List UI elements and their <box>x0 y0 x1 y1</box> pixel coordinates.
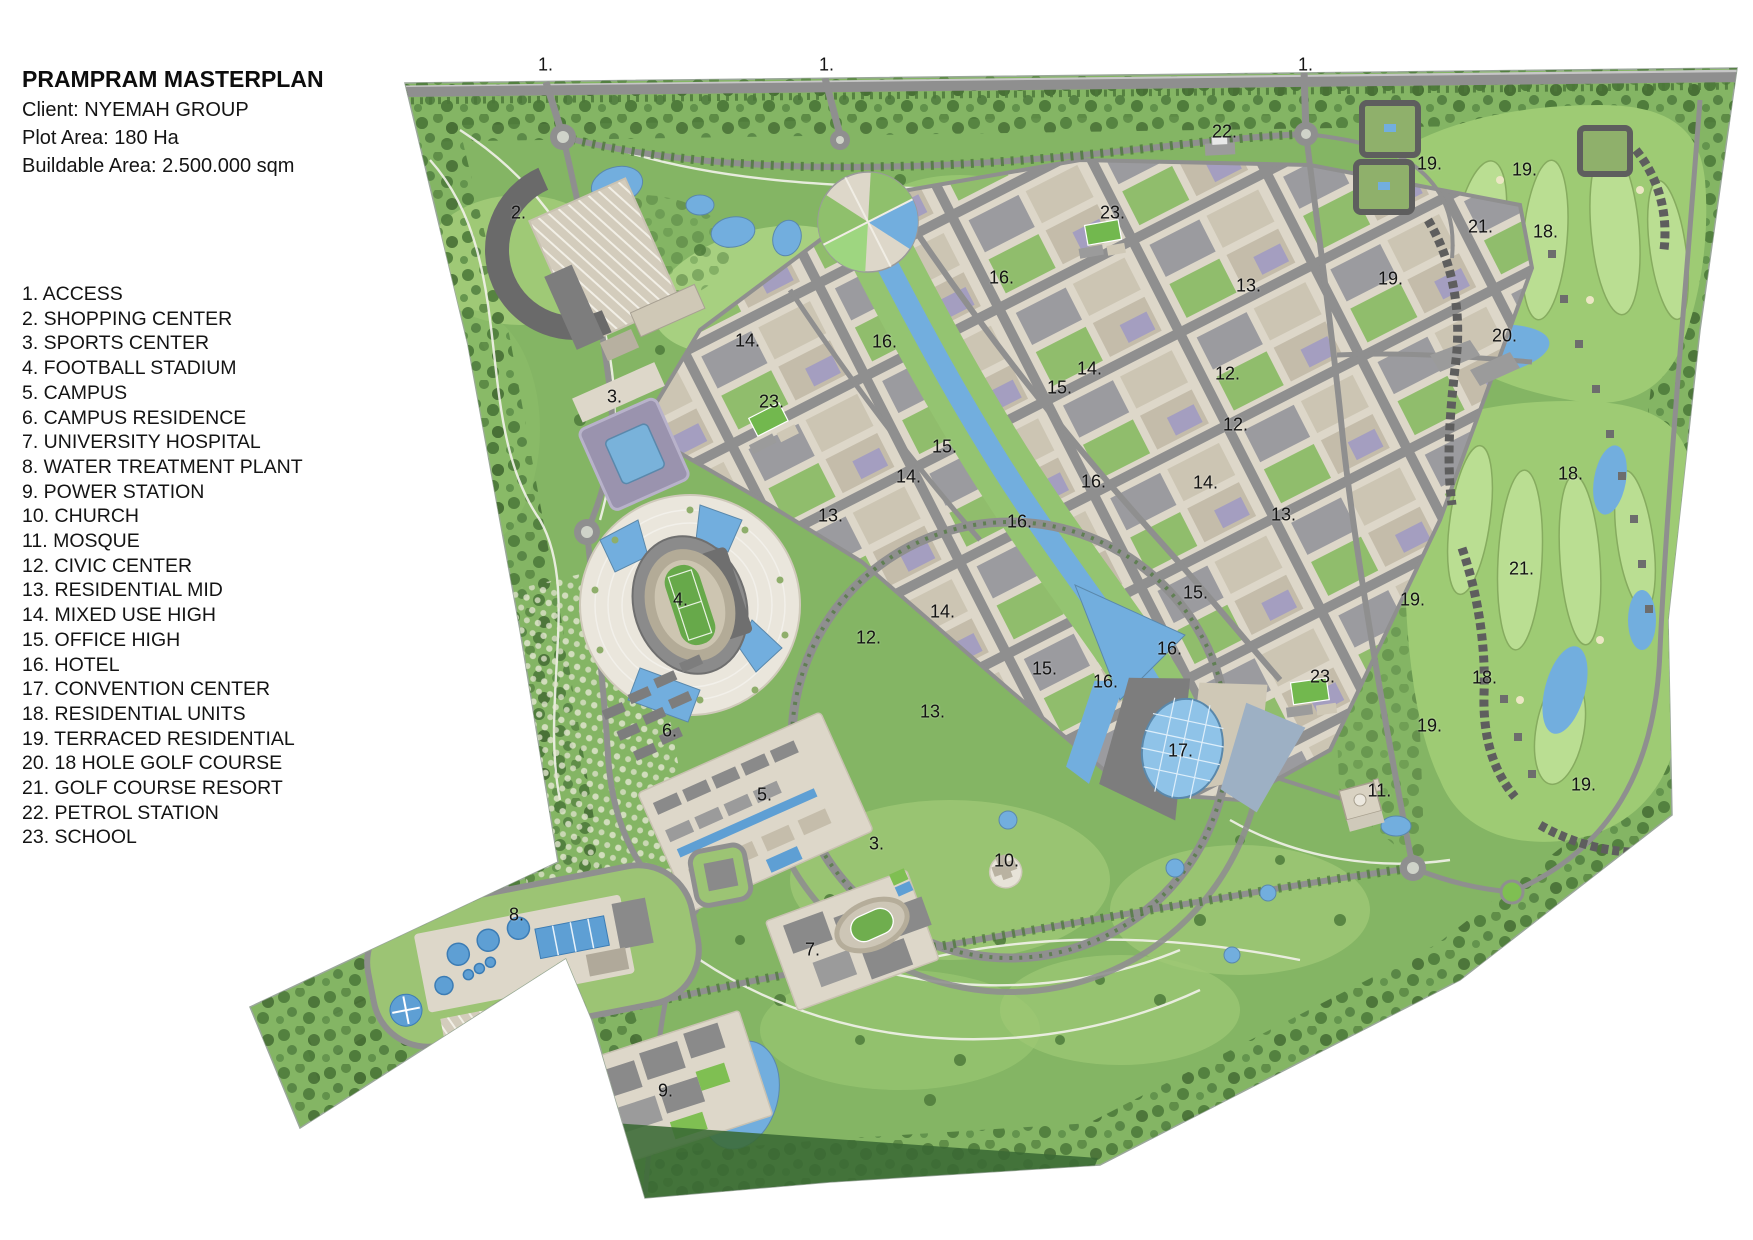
masterplan-page: PRAMPRAM MASTERPLAN Client: NYEMAH GROUP… <box>0 0 1753 1240</box>
legend-item: 14. MIXED USE HIGH <box>22 603 303 628</box>
legend-item: 12. CIVIC CENTER <box>22 554 303 579</box>
legend-item: 17. CONVENTION CENTER <box>22 677 303 702</box>
legend-item: 1. ACCESS <box>22 282 303 307</box>
legend-item: 3. SPORTS CENTER <box>22 331 303 356</box>
legend-item: 19. TERRACED RESIDENTIAL <box>22 727 303 752</box>
legend-item: 21. GOLF COURSE RESORT <box>22 776 303 801</box>
legend-item: 18. RESIDENTIAL UNITS <box>22 702 303 727</box>
legend-item: 2. SHOPPING CENTER <box>22 307 303 332</box>
legend-item: 4. FOOTBALL STADIUM <box>22 356 303 381</box>
legend-item: 9. POWER STATION <box>22 480 303 505</box>
plot-area-line: Plot Area: 180 Ha <box>22 127 179 150</box>
legend-item: 16. HOTEL <box>22 653 303 678</box>
legend-item: 13. RESIDENTIAL MID <box>22 578 303 603</box>
legend-item: 6. CAMPUS RESIDENCE <box>22 406 303 431</box>
legend-item: 23. SCHOOL <box>22 825 303 850</box>
legend-list: 1. ACCESS2. SHOPPING CENTER3. SPORTS CEN… <box>22 282 303 850</box>
client-line: Client: NYEMAH GROUP <box>22 99 249 122</box>
legend-item: 11. MOSQUE <box>22 529 303 554</box>
legend-item: 10. CHURCH <box>22 504 303 529</box>
legend-item: 7. UNIVERSITY HOSPITAL <box>22 430 303 455</box>
legend-item: 20. 18 HOLE GOLF COURSE <box>22 751 303 776</box>
legend-item: 5. CAMPUS <box>22 381 303 406</box>
legend-item: 8. WATER TREATMENT PLANT <box>22 455 303 480</box>
legend-item: 22. PETROL STATION <box>22 801 303 826</box>
buildable-area-line: Buildable Area: 2.500.000 sqm <box>22 155 294 178</box>
page-title: PRAMPRAM MASTERPLAN <box>22 66 324 93</box>
legend-item: 15. OFFICE HIGH <box>22 628 303 653</box>
